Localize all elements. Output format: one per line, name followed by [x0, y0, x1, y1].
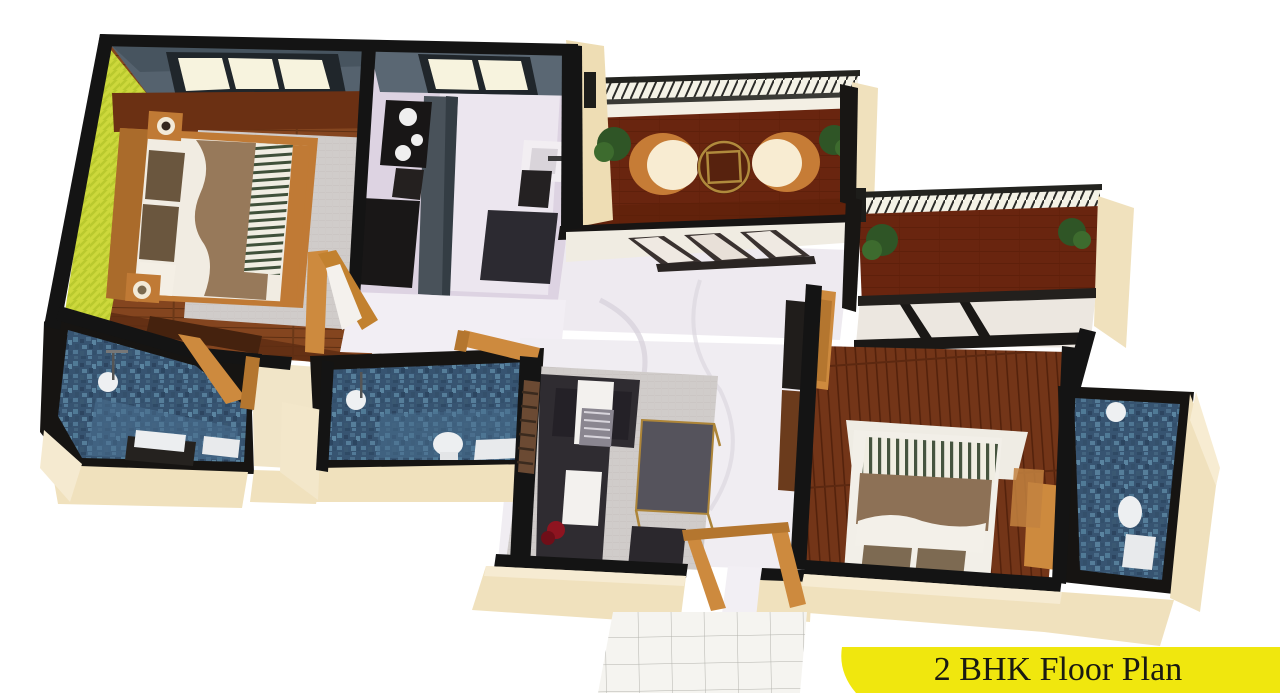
svg-text:2 BHK Floor Plan: 2 BHK Floor Plan [934, 651, 1182, 688]
